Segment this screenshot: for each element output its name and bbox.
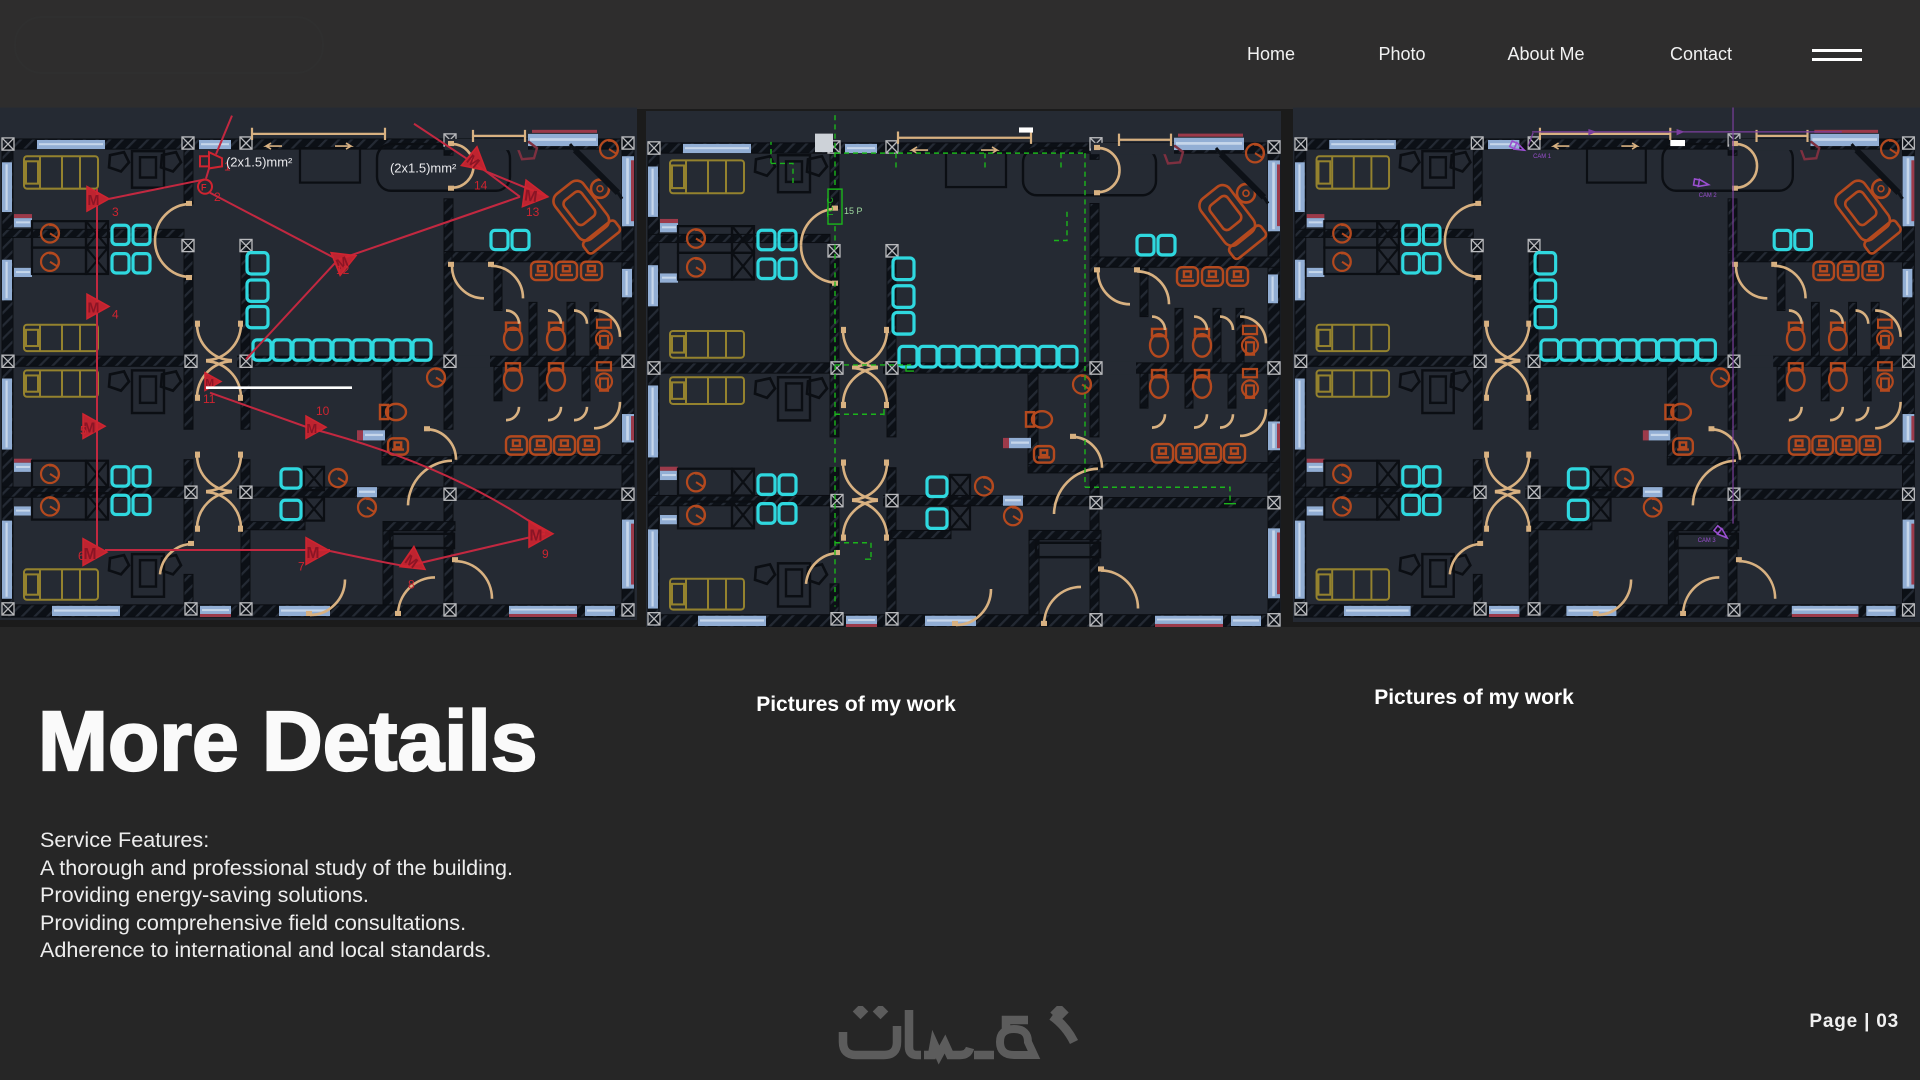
svg-text:2: 2 [214, 190, 221, 204]
svg-text:M: M [523, 187, 538, 206]
svg-text:CAM 3: CAM 3 [1698, 538, 1717, 544]
svg-text:4: 4 [112, 308, 119, 322]
svg-text:9: 9 [542, 547, 549, 561]
svg-text:8: 8 [408, 578, 415, 592]
svg-text:7: 7 [298, 559, 305, 573]
svg-text:11: 11 [203, 392, 216, 406]
svg-text:F: F [201, 183, 207, 193]
svg-text:M: M [306, 545, 319, 562]
svg-text:10: 10 [316, 404, 330, 418]
svg-text:CAM 1: CAM 1 [1533, 154, 1552, 160]
svg-text:5: 5 [80, 423, 87, 437]
svg-text:15 P: 15 P [844, 206, 862, 216]
svg-text:M: M [306, 421, 317, 436]
svg-text:M: M [83, 546, 96, 563]
svg-text:M: M [529, 528, 542, 545]
svg-text:13: 13 [526, 205, 540, 219]
svg-text:M: M [87, 193, 99, 209]
svg-text:3: 3 [112, 205, 119, 219]
svg-text:M: M [87, 301, 99, 317]
svg-text:12: 12 [336, 263, 350, 277]
svg-text:(2x1.5)mm²: (2x1.5)mm² [390, 160, 457, 175]
svg-text:TC-C: TC-C [826, 197, 835, 217]
svg-text:CAM 2: CAM 2 [1699, 193, 1718, 199]
svg-text:(2x1.5)mm²: (2x1.5)mm² [226, 154, 293, 169]
svg-text:6: 6 [78, 549, 85, 563]
svg-text:14: 14 [474, 179, 488, 193]
